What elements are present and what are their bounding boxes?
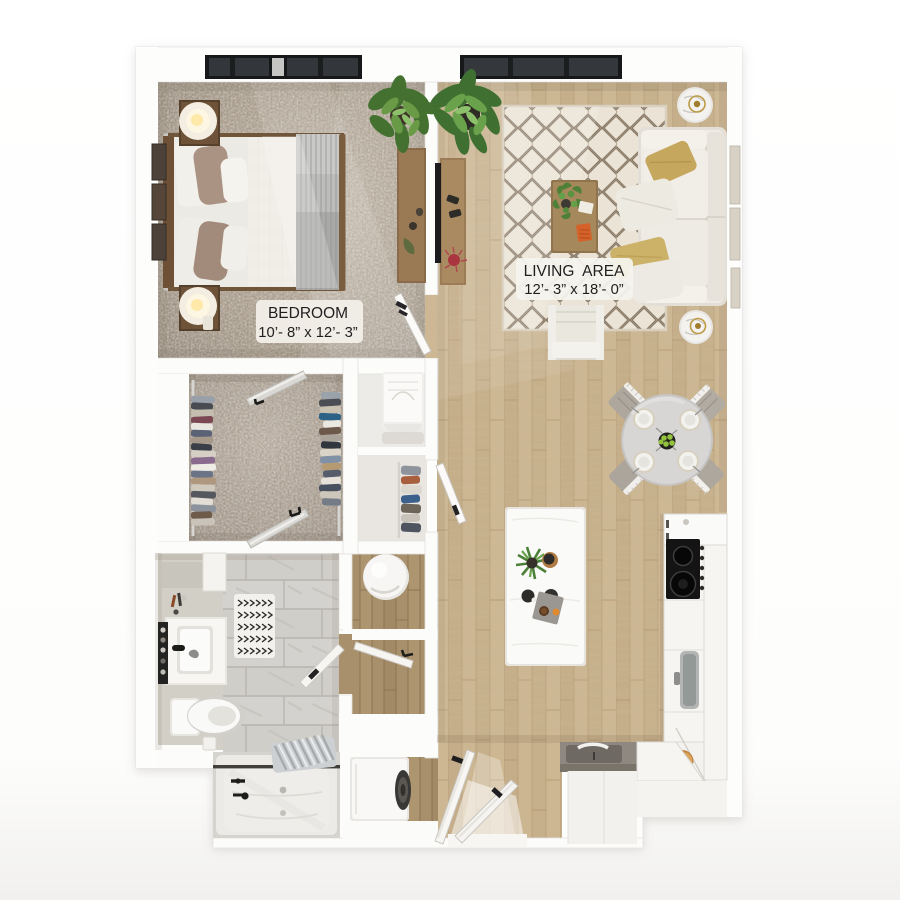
svg-text:BEDROOM: BEDROOM [268, 305, 348, 322]
svg-text:LIVING AREA: LIVING AREA [524, 263, 625, 280]
svg-text:10’- 8” x 12’- 3”: 10’- 8” x 12’- 3” [258, 325, 358, 341]
svg-text:12’- 3” x 18’- 0”: 12’- 3” x 18’- 0” [524, 282, 624, 298]
